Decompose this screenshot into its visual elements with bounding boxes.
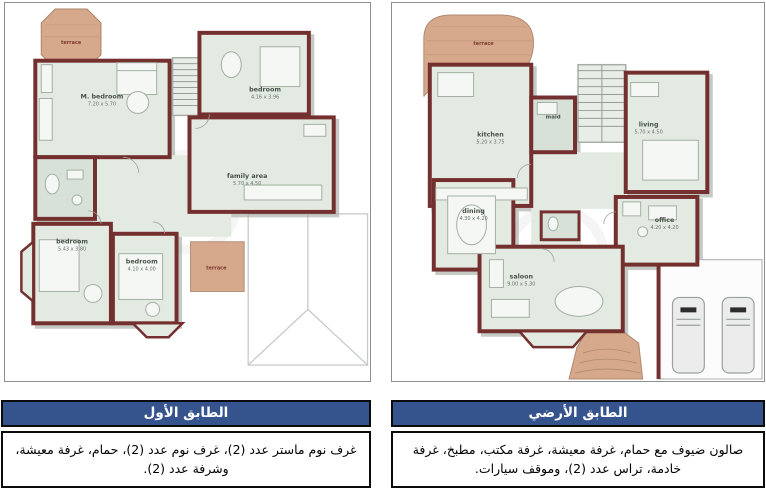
room-wc — [541, 212, 579, 240]
ground-floor-plan-drawing: terrace kitchen 5.20 x 3.75 maid living … — [392, 3, 764, 381]
bedroom-mid-label: bedroom — [126, 259, 158, 266]
terrace-bottom-label: terrace — [206, 266, 227, 272]
ground-floor-plan-image: terrace kitchen 5.20 x 3.75 maid living … — [391, 2, 765, 382]
ground-floor-title: الطابق الأرضي — [391, 400, 765, 427]
terrace-top-label: terrace — [61, 40, 82, 46]
dining-dims: 4.30 x 4.20 — [459, 216, 487, 222]
room-bathroom — [35, 157, 95, 219]
living-dims: 5.70 x 4.50 — [635, 129, 663, 135]
first-floor-plan-drawing: terrace M. bedroom 7.20 x 5.70 bedroom 4… — [5, 3, 370, 381]
dining-label: dining — [462, 208, 485, 215]
car — [672, 297, 704, 373]
saloon-bay-window — [519, 331, 587, 347]
bay-window-left — [21, 242, 33, 302]
first-floor-plan-image: terrace M. bedroom 7.20 x 5.70 bedroom 4… — [4, 2, 371, 382]
bedroom-top-label: bedroom — [249, 87, 281, 94]
staircase — [578, 65, 626, 143]
first-floor-title: الطابق الأول — [1, 400, 371, 427]
bedroom-top-dims: 4.16 x 3.96 — [251, 94, 279, 100]
family-area-dims: 5.70 x 4.50 — [233, 181, 261, 187]
living-label: living — [639, 121, 659, 128]
office-dims: 4.20 x 4.20 — [650, 225, 678, 231]
m-bedroom-label: M. bedroom — [81, 93, 124, 100]
terrace-label: terrace — [473, 41, 494, 47]
saloon-dims: 9.00 x 5.30 — [507, 281, 535, 287]
ground-floor-caption: الطابق الأرضي صالون ضيوف مع حمام، غرفة م… — [391, 400, 765, 488]
kitchen-label: kitchen — [477, 131, 504, 138]
bedroom-left-label: bedroom — [56, 239, 88, 246]
saloon-label: saloon — [510, 274, 534, 281]
bedroom-left-dims: 5.43 x 3.80 — [58, 247, 86, 253]
office-label: office — [655, 217, 675, 224]
car — [722, 297, 754, 373]
first-floor-description: غرف نوم ماستر عدد (2)، غرف نوم عدد (2)، … — [1, 431, 371, 488]
ground-floor-description: صالون ضيوف مع حمام، غرفة معيشة، غرفة مكت… — [391, 431, 765, 488]
maid-label: maid — [546, 114, 561, 120]
m-bedroom-dims: 7.20 x 5.70 — [88, 101, 116, 107]
kitchen-dims: 5.20 x 3.75 — [476, 139, 504, 145]
roof-outline — [248, 214, 367, 365]
family-area-label: family area — [227, 173, 267, 180]
car-park — [659, 260, 762, 379]
page: terrace M. bedroom 7.20 x 5.70 bedroom 4… — [0, 0, 766, 496]
bay-window-bottom — [133, 323, 183, 337]
bedroom-mid-dims: 4.10 x 4.00 — [128, 267, 156, 273]
first-floor-caption: الطابق الأول غرف نوم ماستر عدد (2)، غرف … — [1, 400, 371, 488]
